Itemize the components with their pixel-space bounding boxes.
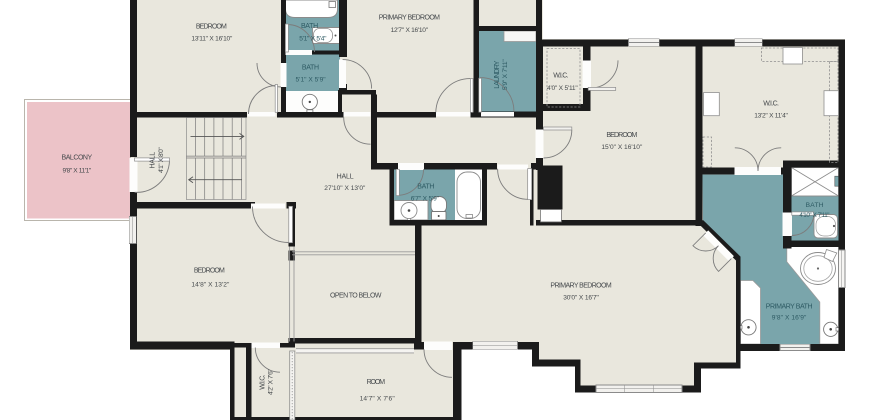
- svg-text:4'1" X 8'0": 4'1" X 8'0": [158, 147, 165, 173]
- svg-text:BATH: BATH: [301, 23, 319, 30]
- svg-text:9'8" X 16'9": 9'8" X 16'9": [772, 314, 807, 321]
- svg-text:14'7" X 7'6": 14'7" X 7'6": [360, 396, 396, 403]
- svg-text:BATH: BATH: [806, 202, 824, 209]
- svg-text:5'1" X 5'9": 5'1" X 5'9": [296, 76, 327, 83]
- svg-text:W.I.C.: W.I.C.: [763, 101, 779, 108]
- svg-text:27'10" X 13'0": 27'10" X 13'0": [324, 185, 366, 192]
- svg-text:BATH: BATH: [417, 184, 435, 191]
- svg-text:PRIMARY BEDROOM: PRIMARY BEDROOM: [379, 15, 441, 22]
- svg-text:BEDROOM: BEDROOM: [194, 267, 225, 274]
- svg-text:PRIMARY BATH: PRIMARY BATH: [766, 303, 813, 310]
- svg-text:HALL: HALL: [337, 174, 354, 181]
- svg-text:5'9" X 7'11": 5'9" X 7'11": [502, 59, 509, 90]
- svg-text:4'10" X 7'11": 4'10" X 7'11": [799, 212, 829, 219]
- svg-text:13'2" X 11'4": 13'2" X 11'4": [754, 113, 788, 120]
- svg-text:12'7" X 16'10": 12'7" X 16'10": [391, 27, 429, 34]
- svg-text:15'0" X 16'10": 15'0" X 16'10": [601, 144, 643, 151]
- svg-text:OPEN TO BELOW: OPEN TO BELOW: [330, 293, 382, 300]
- svg-text:LAUNDRY: LAUNDRY: [494, 60, 501, 89]
- svg-text:13'11" X 16'10": 13'11" X 16'10": [191, 35, 233, 42]
- svg-text:W.I.C.: W.I.C.: [553, 72, 569, 79]
- svg-text:6'7" X 5'9": 6'7" X 5'9": [411, 196, 440, 203]
- svg-text:BEDROOM: BEDROOM: [606, 132, 637, 139]
- svg-text:9'8" X 11'1": 9'8" X 11'1": [63, 168, 92, 175]
- svg-text:30'0" X 16'7": 30'0" X 16'7": [563, 295, 599, 302]
- svg-text:4'0" X 5'11": 4'0" X 5'11": [547, 85, 578, 92]
- svg-text:HALL: HALL: [150, 152, 157, 169]
- svg-text:BATH: BATH: [302, 65, 320, 72]
- svg-text:PRIMARY BEDROOM: PRIMARY BEDROOM: [550, 282, 612, 289]
- svg-text:ROOM: ROOM: [367, 379, 386, 386]
- svg-text:BEDROOM: BEDROOM: [196, 24, 227, 31]
- svg-text:5'1" X 5'4": 5'1" X 5'4": [299, 35, 327, 42]
- svg-text:14'8" X 13'2": 14'8" X 13'2": [191, 281, 230, 288]
- svg-text:W.I.C.: W.I.C.: [259, 374, 266, 390]
- svg-text:BALCONY: BALCONY: [62, 155, 93, 162]
- svg-text:4'2" X 7'6": 4'2" X 7'6": [268, 369, 275, 395]
